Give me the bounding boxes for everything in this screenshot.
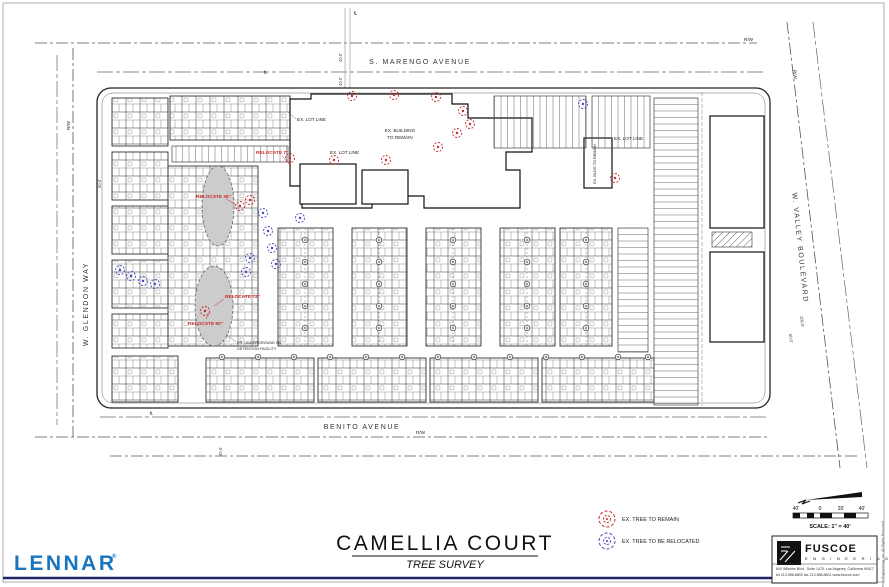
tree-proposed-marker: [583, 281, 589, 287]
street-label-glendon: W. GLENDON WAY: [83, 262, 90, 346]
engineer-block: FUSCOE E N G I N E E R I N G 600 Wilshir…: [772, 521, 889, 587]
existing-building-east: [710, 116, 764, 228]
tree-proposed-marker: [376, 303, 382, 309]
centerline-symbol-north: ℄: [263, 70, 268, 75]
page-title: CAMELLIA COURT: [336, 532, 554, 555]
tree-proposed-marker: [543, 354, 549, 360]
tree-proposed-marker: [302, 303, 308, 309]
centerline-symbol-south: ℄: [149, 411, 154, 416]
page-subtitle: TREE SURVEY: [406, 559, 484, 571]
tree-proposed-marker: [219, 354, 225, 360]
tree-proposed-marker: [450, 259, 456, 265]
fuscoe-subtitle: E N G I N E E R I N G: [805, 556, 889, 561]
rw-label-north: R/W: [744, 37, 754, 42]
relocate-note-1: RELOCATE 7": [256, 150, 288, 156]
tree-proposed-marker: [450, 237, 456, 243]
tree-proposed-marker: [302, 259, 308, 265]
tree-remain-icon-dot: [606, 518, 608, 520]
existing-building-east: [710, 252, 764, 342]
building-block: [112, 152, 168, 200]
scale-bar: 40' 0 20' 40' SCALE: 1" = 40': [793, 492, 868, 530]
building-block: [542, 358, 654, 402]
existing-building-wing: [362, 170, 408, 204]
building-block: [112, 356, 178, 402]
tree-proposed-marker: [507, 354, 513, 360]
ex-bldg-label: EX. BLDG TO REMAIN: [593, 144, 597, 184]
scale-bar-seg: [820, 513, 832, 518]
legend-label-relocate: EX. TREE TO BE RELOCATED: [622, 539, 700, 545]
tree-relocate-marker: [268, 244, 277, 253]
legend-label-remain: EX. TREE TO REMAIN: [622, 517, 679, 523]
registered-mark: ®: [112, 553, 117, 560]
tree-proposed-marker: [255, 354, 261, 360]
tree-proposed-marker: [376, 281, 382, 287]
tree-proposed-marker: [399, 354, 405, 360]
scale-label: SCALE: 1" = 40': [809, 524, 851, 530]
tree-proposed-marker: [376, 259, 382, 265]
fuscoe-logo-icon: [777, 541, 801, 565]
tree-proposed-marker: [450, 303, 456, 309]
tree-proposed-marker: [327, 354, 333, 360]
hatched-structure: [712, 232, 752, 247]
legend-item-relocate: EX. TREE TO BE RELOCATED: [599, 533, 700, 549]
tree-proposed-marker: [524, 259, 530, 265]
fuscoe-name: FUSCOE: [805, 543, 857, 555]
fuscoe-address: 600 Wilshire Blvd., Suite 1470, Los Ange…: [776, 567, 874, 571]
tree-proposed-marker: [450, 281, 456, 287]
tree-proposed-marker: [302, 237, 308, 243]
relocate-note-3: RELOCATE 72": [225, 294, 260, 300]
building-block: [170, 96, 290, 140]
dim-40-b: 40.0': [338, 77, 343, 86]
site-plan-drawing: S. MARENGO AVENUE BENITO AVENUE W. GLEND…: [0, 0, 889, 587]
tree-proposed-marker: [450, 325, 456, 331]
north-arrow-tail: [798, 500, 810, 504]
tree-relocate-icon-dot: [606, 540, 608, 542]
fuscoe-contact: tel 213.988.8800 fax 213.988.8801 www.fu…: [776, 573, 860, 577]
tree-proposed-marker: [615, 354, 621, 360]
tree-relocate-marker: [259, 209, 268, 218]
tree-proposed-marker: [579, 354, 585, 360]
copyright-note: © Fuscoe Engineering, Inc. All Rights Re…: [881, 521, 885, 587]
scale-tick-1: 0: [819, 506, 822, 512]
ex-lot-line-label-1: EX. LOT LINE: [297, 117, 326, 122]
existing-building-wing: [300, 164, 356, 204]
ex-lot-line-label-3: EX. LOT LINE: [614, 136, 643, 141]
tree-proposed-marker: [524, 281, 530, 287]
title-block: CAMELLIA COURT TREE SURVEY: [336, 532, 554, 571]
detention-facility-oval: [202, 166, 234, 246]
tree-proposed-marker: [583, 325, 589, 331]
scale-bar-seg: [793, 513, 800, 518]
parking-row: [654, 98, 698, 405]
tree-relocate-marker: [264, 227, 273, 236]
tree-proposed-marker: [363, 354, 369, 360]
legend-item-remain: EX. TREE TO REMAIN: [599, 511, 679, 527]
building-block: [112, 206, 168, 254]
detention-label-line2: DETENTION FACILITY: [237, 347, 277, 351]
scale-bar-seg: [807, 513, 814, 518]
building-block: [318, 358, 426, 402]
building-block: [206, 358, 314, 402]
ex-building-label-line2: TO REMAIN: [387, 135, 412, 140]
rw-label-south: R/W: [416, 430, 426, 435]
north-arrow-icon: [806, 492, 862, 500]
scale-tick-3: 40': [859, 506, 866, 512]
tree-proposed-marker: [302, 325, 308, 331]
tree-proposed-marker: [524, 237, 530, 243]
tree-proposed-marker: [524, 303, 530, 309]
tree-proposed-marker: [583, 259, 589, 265]
street-label-valley: W. VALLEY BOULEVARD: [790, 192, 809, 303]
rw-label-east: R/W: [792, 70, 798, 80]
plan-sheet: S. MARENGO AVENUE BENITO AVENUE W. GLEND…: [0, 0, 889, 587]
dim-100-east: 100.0': [799, 316, 805, 328]
street-label-benito: BENITO AVENUE: [324, 424, 401, 431]
scale-tick-0: 40': [793, 506, 800, 512]
parking-row: [494, 96, 586, 148]
tree-proposed-marker: [645, 354, 651, 360]
detention-label-line1: PR. UNDERGROUND SD: [237, 341, 281, 345]
relocate-note-2: RELOCATE 36": [196, 194, 231, 200]
tree-relocate-marker: [296, 214, 305, 223]
parking-row: [618, 228, 648, 352]
tree-proposed-marker: [583, 303, 589, 309]
relocate-note-4: RELOCATE 60": [188, 321, 223, 327]
dim-60-east: 60.0': [788, 334, 794, 344]
tree-proposed-marker: [583, 237, 589, 243]
ex-lot-line-label-2: EX. LOT LINE: [330, 150, 359, 155]
rw-label-west: R/W: [66, 120, 71, 130]
building-block: [112, 98, 168, 146]
building-block: [430, 358, 538, 402]
dim-60-west: 60.0': [97, 179, 102, 188]
tree-proposed-marker: [302, 281, 308, 287]
centerline-symbol-stub: ℄: [353, 11, 358, 16]
tree-proposed-marker: [471, 354, 477, 360]
tree-proposed-marker: [376, 325, 382, 331]
dim-40-a: 40.0': [338, 53, 343, 62]
street-label-marengo: S. MARENGO AVENUE: [369, 59, 471, 66]
builder-logo: LENNAR ®: [14, 552, 117, 575]
ex-building-label-line1: EX. BUILDING: [385, 128, 416, 133]
dim-40-south: 40.0': [218, 447, 223, 456]
tree-proposed-marker: [435, 354, 441, 360]
legend: EX. TREE TO REMAIN EX. TREE TO BE RELOCA…: [599, 511, 700, 549]
tree-proposed-marker: [524, 325, 530, 331]
scale-tick-2: 20': [838, 506, 845, 512]
building-block: [112, 314, 168, 348]
lennar-logo-text: LENNAR: [14, 552, 117, 575]
tree-proposed-marker: [291, 354, 297, 360]
tree-proposed-marker: [376, 237, 382, 243]
scale-bar-seg: [844, 513, 856, 518]
